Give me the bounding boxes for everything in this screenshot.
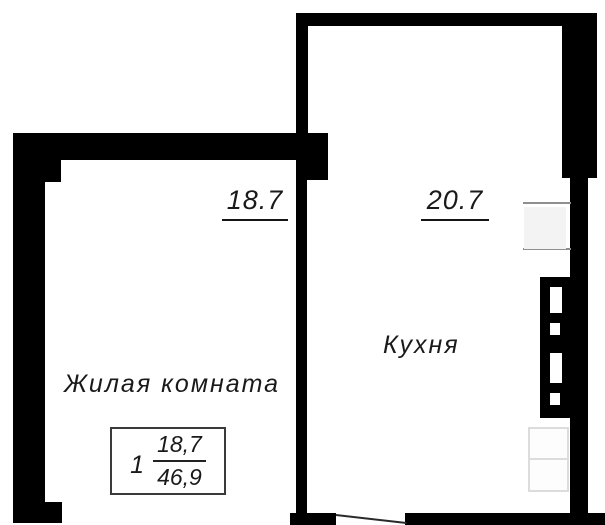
- wall-living-left-foot: [13, 502, 62, 523]
- living-room-area-label: 18.7: [222, 187, 288, 221]
- stove-symbol: [524, 207, 566, 249]
- wall-living-top: [13, 133, 296, 160]
- fridge-door-divider: [530, 458, 567, 460]
- living-room-name-label: Жилая комната: [64, 372, 280, 397]
- wall-kitchen-right-upper: [562, 26, 597, 178]
- kitchen-name-label: Кухня: [383, 333, 460, 358]
- vent-slot: [550, 287, 562, 313]
- vent-slot: [550, 323, 560, 335]
- vent-slot: [550, 393, 560, 405]
- stamp-total-area: 46,9: [157, 462, 202, 491]
- vent-slot: [550, 353, 562, 383]
- area-stamp-box: 1 18,7 46,9: [110, 427, 226, 495]
- stamp-living-area: 18,7: [153, 431, 206, 462]
- door-swing-line: [336, 514, 407, 524]
- wall-divider-lower: [296, 180, 307, 513]
- stamp-area-fraction: 18,7 46,9: [153, 431, 206, 491]
- wall-living-left: [13, 133, 45, 503]
- wall-divider-foot: [290, 513, 336, 525]
- kitchen-area-label: 20.7: [421, 187, 489, 221]
- wall-divider-junction: [296, 133, 328, 180]
- wall-living-corner-pier: [45, 160, 61, 182]
- wall-kitchen-top: [296, 13, 597, 26]
- wall-divider-upper: [296, 14, 308, 133]
- window-sill-line: [523, 202, 571, 204]
- wall-kitchen-right-lower: [570, 178, 588, 513]
- stamp-room-number: 1: [130, 451, 144, 480]
- wall-kitchen-bottom: [405, 513, 605, 525]
- floor-plan: 18.7 20.7 Кухня Жилая комната 1 18,7 46,…: [0, 0, 605, 525]
- fridge-symbol: [528, 427, 569, 492]
